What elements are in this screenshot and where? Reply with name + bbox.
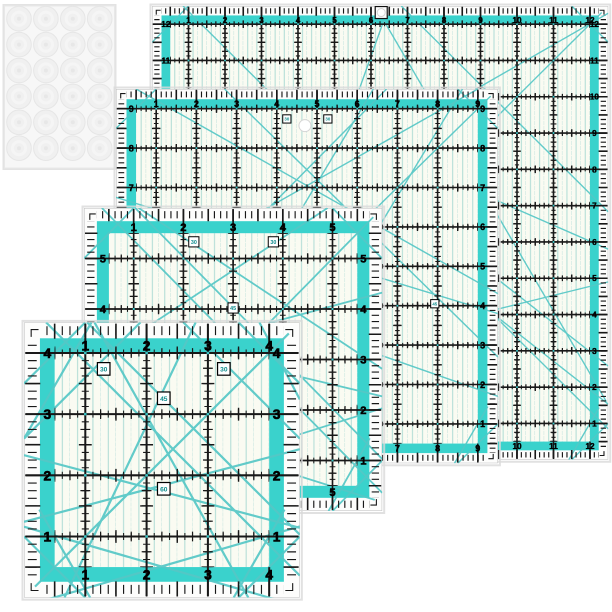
svg-text:2: 2 bbox=[360, 405, 366, 417]
svg-text:10: 10 bbox=[512, 16, 522, 25]
svg-text:1: 1 bbox=[360, 456, 366, 468]
svg-text:5: 5 bbox=[329, 222, 335, 234]
svg-text:12: 12 bbox=[161, 20, 171, 29]
svg-text:1: 1 bbox=[592, 419, 597, 428]
svg-text:8: 8 bbox=[480, 143, 485, 153]
svg-text:9: 9 bbox=[592, 129, 597, 138]
svg-text:30: 30 bbox=[270, 240, 276, 246]
svg-text:2: 2 bbox=[194, 99, 199, 109]
svg-text:4: 4 bbox=[273, 346, 281, 361]
svg-text:1: 1 bbox=[154, 99, 159, 109]
svg-text:5: 5 bbox=[332, 16, 337, 25]
svg-text:2: 2 bbox=[273, 468, 281, 483]
svg-text:7: 7 bbox=[129, 183, 134, 193]
svg-text:11: 11 bbox=[549, 442, 558, 451]
svg-text:1: 1 bbox=[43, 529, 51, 544]
svg-text:5: 5 bbox=[314, 99, 319, 109]
svg-text:4: 4 bbox=[280, 222, 287, 234]
svg-text:1: 1 bbox=[81, 339, 89, 354]
svg-text:6: 6 bbox=[369, 16, 374, 25]
svg-text:2: 2 bbox=[180, 222, 186, 234]
svg-text:3: 3 bbox=[43, 407, 51, 422]
svg-text:30: 30 bbox=[325, 117, 330, 122]
svg-text:45: 45 bbox=[230, 306, 236, 312]
svg-text:6: 6 bbox=[480, 222, 485, 232]
svg-text:2: 2 bbox=[43, 468, 51, 483]
svg-text:9: 9 bbox=[129, 104, 134, 114]
svg-text:6: 6 bbox=[355, 99, 360, 109]
svg-text:2: 2 bbox=[143, 339, 151, 354]
svg-text:4: 4 bbox=[592, 311, 597, 320]
svg-text:10: 10 bbox=[512, 442, 522, 451]
svg-text:8: 8 bbox=[129, 143, 134, 153]
svg-text:7: 7 bbox=[395, 444, 400, 454]
svg-text:1: 1 bbox=[131, 222, 137, 234]
svg-text:6: 6 bbox=[592, 238, 597, 247]
svg-text:8: 8 bbox=[435, 99, 440, 109]
svg-text:12: 12 bbox=[590, 20, 600, 29]
svg-text:4: 4 bbox=[274, 99, 279, 109]
svg-text:4: 4 bbox=[360, 304, 367, 316]
svg-text:8: 8 bbox=[592, 165, 597, 174]
svg-text:1: 1 bbox=[81, 567, 89, 582]
svg-text:30: 30 bbox=[191, 240, 197, 246]
svg-text:9: 9 bbox=[478, 16, 483, 25]
svg-text:8: 8 bbox=[435, 444, 440, 454]
svg-text:4: 4 bbox=[100, 304, 107, 316]
svg-text:9: 9 bbox=[475, 444, 480, 454]
svg-text:2: 2 bbox=[223, 16, 228, 25]
svg-text:45: 45 bbox=[432, 301, 437, 306]
svg-text:11: 11 bbox=[590, 56, 599, 65]
svg-text:3: 3 bbox=[204, 567, 212, 582]
svg-text:5: 5 bbox=[329, 487, 335, 499]
svg-text:45: 45 bbox=[160, 396, 168, 403]
svg-text:3: 3 bbox=[592, 347, 597, 356]
svg-text:3: 3 bbox=[230, 222, 236, 234]
svg-text:2: 2 bbox=[143, 567, 151, 582]
svg-text:7: 7 bbox=[395, 99, 400, 109]
svg-text:60: 60 bbox=[160, 486, 168, 493]
svg-text:4: 4 bbox=[43, 346, 51, 361]
svg-text:5: 5 bbox=[100, 254, 106, 266]
svg-text:7: 7 bbox=[480, 183, 485, 193]
svg-text:3: 3 bbox=[273, 407, 281, 422]
svg-text:5: 5 bbox=[480, 262, 485, 272]
svg-text:30: 30 bbox=[100, 366, 108, 373]
svg-text:30: 30 bbox=[284, 117, 289, 122]
svg-text:3: 3 bbox=[234, 99, 239, 109]
svg-text:11: 11 bbox=[549, 16, 558, 25]
svg-text:2: 2 bbox=[480, 380, 485, 390]
svg-text:3: 3 bbox=[204, 339, 212, 354]
svg-text:8: 8 bbox=[442, 16, 447, 25]
svg-text:7: 7 bbox=[405, 16, 410, 25]
svg-text:3: 3 bbox=[360, 355, 366, 367]
svg-text:7: 7 bbox=[592, 202, 597, 211]
svg-text:1: 1 bbox=[186, 16, 191, 25]
svg-text:5: 5 bbox=[592, 274, 597, 283]
svg-text:3: 3 bbox=[480, 340, 485, 350]
svg-text:5: 5 bbox=[360, 254, 366, 266]
svg-text:10: 10 bbox=[590, 93, 600, 102]
svg-text:1: 1 bbox=[273, 529, 281, 544]
svg-text:30: 30 bbox=[220, 366, 228, 373]
svg-text:4: 4 bbox=[265, 567, 273, 582]
svg-text:4: 4 bbox=[480, 301, 485, 311]
svg-text:3: 3 bbox=[259, 16, 264, 25]
svg-text:1: 1 bbox=[480, 419, 485, 429]
svg-text:11: 11 bbox=[162, 56, 171, 65]
svg-text:2: 2 bbox=[592, 383, 597, 392]
svg-text:9: 9 bbox=[480, 104, 485, 114]
svg-text:12: 12 bbox=[585, 442, 595, 451]
svg-text:4: 4 bbox=[296, 16, 301, 25]
